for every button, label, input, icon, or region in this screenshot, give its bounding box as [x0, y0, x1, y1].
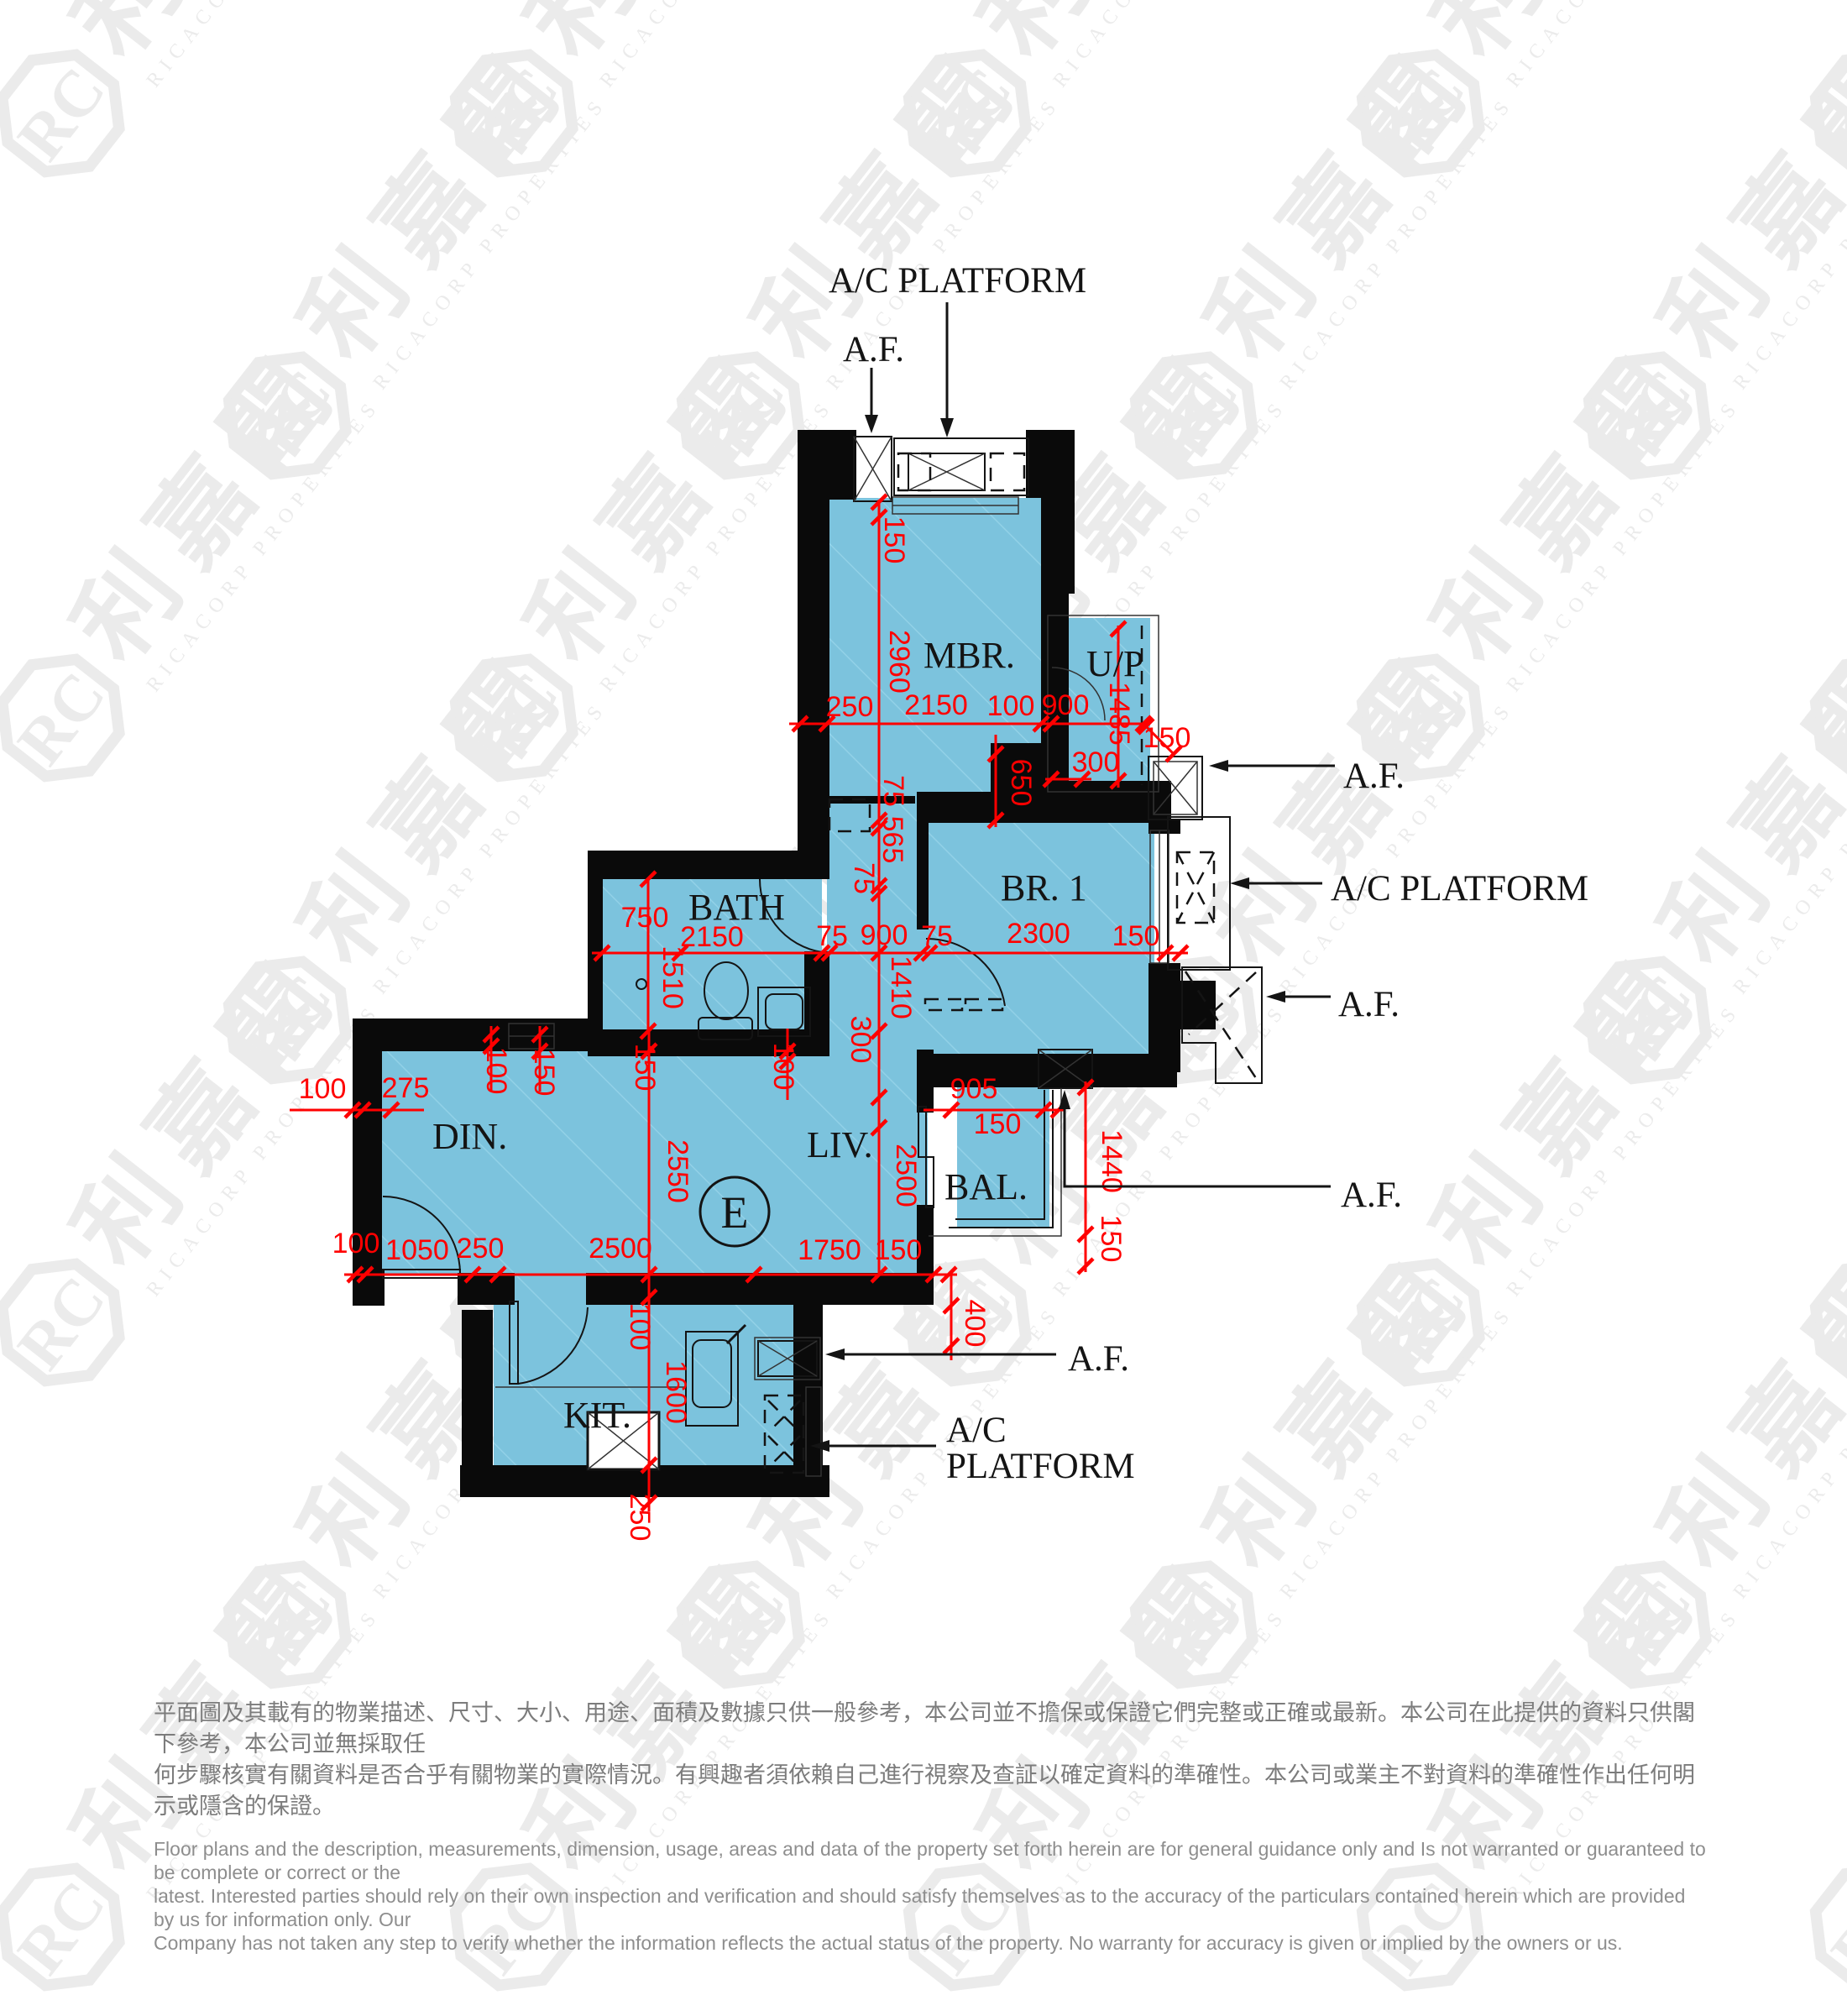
- label-af-right-1: A.F.: [1343, 757, 1405, 796]
- ricacorp-logo-icon: RC: [1786, 1839, 1847, 2016]
- room-label-mbr: MBR.: [923, 635, 1015, 676]
- label-af-bottom: A.F.: [1068, 1339, 1129, 1379]
- disclaimer-zh-line2: 何步驟核實有關資料是否合乎有關物業的實際情況。有興趣者須依賴自己進行視察及查証以…: [154, 1760, 1707, 1822]
- svg-text:900: 900: [861, 919, 908, 951]
- room-label-br1: BR. 1: [1001, 867, 1087, 909]
- svg-text:150: 150: [1095, 1215, 1127, 1263]
- svg-text:2550: 2550: [662, 1139, 693, 1203]
- svg-text:1440: 1440: [1096, 1129, 1128, 1193]
- label-ac-bottom: A/C: [946, 1411, 1007, 1450]
- label-ac-platform-right: A/C PLATFORM: [1331, 869, 1588, 909]
- label-platform-bottom: PLATFORM: [946, 1447, 1135, 1486]
- svg-text:400: 400: [959, 1300, 991, 1348]
- svg-text:100: 100: [624, 1303, 656, 1351]
- room-label-kit: KIT.: [563, 1395, 631, 1436]
- svg-text:2150: 2150: [904, 689, 968, 721]
- label-ac-platform-top: A/C PLATFORM: [829, 261, 1086, 301]
- svg-text:150: 150: [1143, 722, 1191, 754]
- svg-text:100: 100: [332, 1228, 380, 1259]
- svg-text:300: 300: [1072, 746, 1120, 778]
- svg-text:250: 250: [457, 1233, 505, 1265]
- svg-text:900: 900: [1042, 689, 1090, 721]
- svg-text:1750: 1750: [798, 1234, 861, 1266]
- label-af-top: A.F.: [843, 330, 904, 369]
- label-af-right-3: A.F.: [1341, 1176, 1402, 1215]
- svg-text:150: 150: [974, 1108, 1022, 1140]
- room-label-up: U/P: [1086, 643, 1143, 684]
- disclaimer-zh-line1: 平面圖及其載有的物業描述、尺寸、大小、用途、面積及數據只供一般參考，本公司並不擔…: [154, 1698, 1707, 1760]
- disclaimer-en-line3: Company has not taken any step to verify…: [154, 1931, 1707, 1955]
- svg-text:2500: 2500: [589, 1233, 652, 1265]
- svg-text:750: 750: [621, 902, 669, 934]
- svg-text:565: 565: [876, 816, 908, 864]
- disclaimer: 平面圖及其載有的物業描述、尺寸、大小、用途、面積及數據只供一般參考，本公司並不擔…: [154, 1698, 1707, 1955]
- ac-platform-box-top: [894, 438, 1028, 495]
- svg-text:1510: 1510: [657, 945, 688, 1009]
- room-label-din: DIN.: [432, 1116, 507, 1157]
- room-label-bal: BAL.: [944, 1166, 1028, 1207]
- svg-text:100: 100: [987, 690, 1035, 722]
- svg-text:150: 150: [528, 1049, 560, 1097]
- svg-text:650: 650: [1005, 759, 1037, 807]
- svg-text:100: 100: [299, 1073, 347, 1105]
- floor-plan: 150 2960 250 2150 100 900 1485 150 650 3…: [0, 0, 1847, 1847]
- ac-platform-box-br1: [1168, 817, 1230, 970]
- svg-text:150: 150: [1112, 920, 1160, 952]
- svg-text:75: 75: [816, 920, 848, 952]
- svg-text:150: 150: [629, 1044, 661, 1092]
- label-af-right-2: A.F.: [1338, 985, 1400, 1024]
- room-label-liv: LIV.: [807, 1124, 873, 1165]
- disclaimer-en-line1: Floor plans and the description, measure…: [154, 1837, 1707, 1884]
- svg-text:75: 75: [848, 862, 880, 894]
- svg-text:250: 250: [624, 1494, 656, 1542]
- svg-text:2960: 2960: [883, 630, 915, 694]
- svg-text:905: 905: [950, 1073, 998, 1105]
- svg-text:75: 75: [921, 920, 953, 952]
- af-box-top: [854, 437, 892, 501]
- svg-text:1600: 1600: [660, 1360, 692, 1424]
- svg-text:1485: 1485: [1103, 682, 1135, 746]
- svg-text:100: 100: [480, 1047, 512, 1095]
- svg-text:1410: 1410: [885, 956, 917, 1019]
- svg-text:100: 100: [767, 1043, 799, 1091]
- svg-text:150: 150: [878, 516, 910, 564]
- floorplan-page: { "plan": { "unit": "E", "rooms": { "mbr…: [0, 0, 1847, 1847]
- svg-text:1050: 1050: [385, 1234, 449, 1266]
- svg-text:250: 250: [826, 691, 874, 723]
- svg-text:2300: 2300: [1007, 918, 1070, 950]
- room-areas: [382, 498, 1154, 1468]
- svg-text:275: 275: [382, 1072, 430, 1104]
- disclaimer-en-line2: latest. Interested parties should rely o…: [154, 1884, 1707, 1931]
- svg-text:150: 150: [875, 1234, 923, 1266]
- svg-text:2500: 2500: [890, 1144, 922, 1207]
- unit-letter: E: [721, 1187, 749, 1238]
- svg-text:75: 75: [877, 775, 909, 807]
- svg-text:300: 300: [845, 1016, 876, 1064]
- room-label-bath: BATH: [688, 887, 785, 928]
